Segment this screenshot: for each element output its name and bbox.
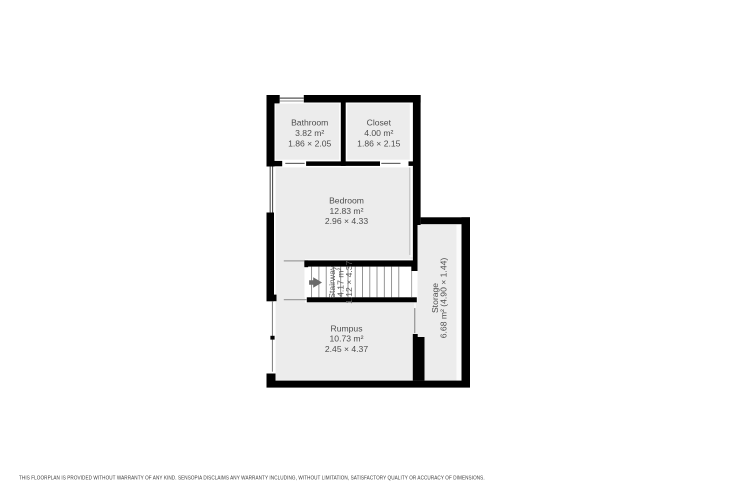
- svg-text:1.86 × 2.05: 1.86 × 2.05: [288, 138, 331, 148]
- svg-text:Bedroom: Bedroom: [329, 196, 364, 206]
- svg-text:Bathroom: Bathroom: [291, 118, 328, 128]
- svg-text:1.12 × 4.37: 1.12 × 4.37: [344, 260, 354, 303]
- svg-text:2.45 × 4.37: 2.45 × 4.37: [325, 344, 368, 354]
- svg-text:4.00 m²: 4.00 m²: [364, 128, 393, 138]
- svg-text:3.82 m²: 3.82 m²: [295, 128, 324, 138]
- svg-text:Rumpus: Rumpus: [331, 323, 363, 333]
- svg-text:10.73 m²: 10.73 m²: [330, 334, 364, 344]
- svg-text:THIS FLOORPLAN IS PROVIDED WIT: THIS FLOORPLAN IS PROVIDED WITHOUT WARRA…: [19, 475, 485, 482]
- svg-text:6.68 m² (4.90 × 1.44): 6.68 m² (4.90 × 1.44): [439, 258, 449, 339]
- svg-text:Closet: Closet: [367, 118, 392, 128]
- svg-text:12.83 m²: 12.83 m²: [330, 206, 364, 216]
- svg-text:1.86 × 2.15: 1.86 × 2.15: [357, 138, 400, 148]
- svg-text:2.96 × 4.33: 2.96 × 4.33: [325, 216, 368, 226]
